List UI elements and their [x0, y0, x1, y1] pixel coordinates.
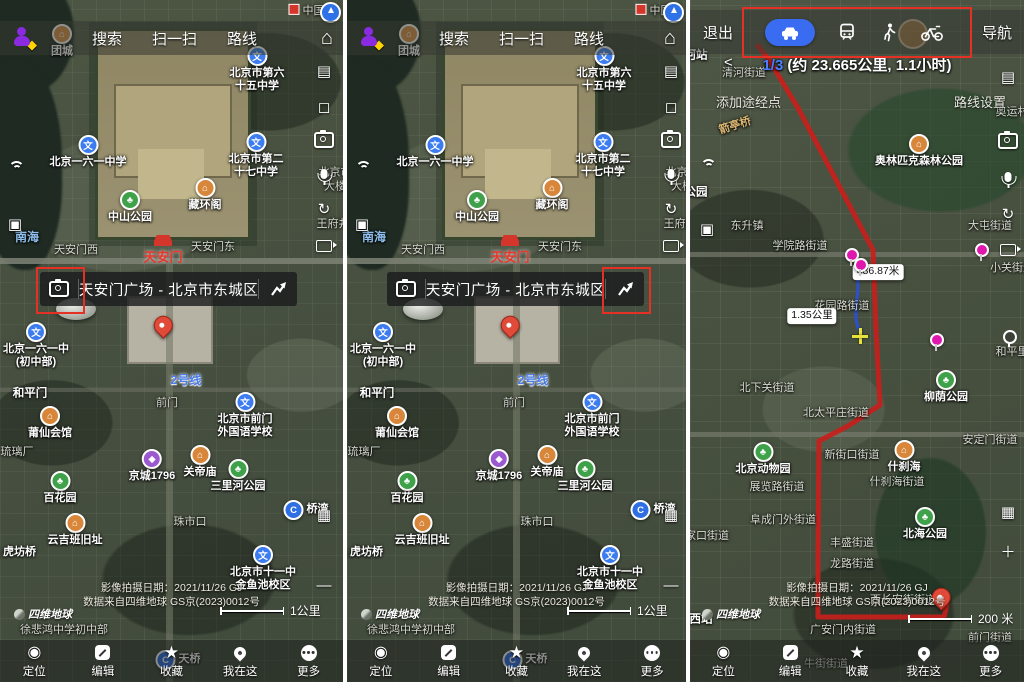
- signal-icon[interactable]: [700, 158, 715, 173]
- city-panel-1: 中国美⌂团城文北京市第六 十五中学文北京一六一中学文北京市第二 十七中学♣中山公…: [0, 0, 343, 682]
- mode-bike-button[interactable]: [920, 22, 944, 42]
- toolbar-label: 更多: [979, 663, 1002, 679]
- qianmen-street-road: [513, 260, 520, 682]
- locate-button[interactable]: ◉定位: [690, 640, 757, 682]
- star-icon: ★: [164, 644, 179, 661]
- toolbar-label: 我在这: [223, 663, 258, 679]
- home-icon[interactable]: ⌂: [321, 28, 333, 48]
- city-panel-2: 中国美⌂团城文北京市第六 十五中学文北京一六一中学文北京市第二 十七中学♣中山公…: [347, 0, 686, 682]
- more-icon: [644, 645, 660, 661]
- scale-bar: 1公里: [567, 602, 668, 619]
- transport-mode-group: [765, 19, 944, 46]
- more-icon: [301, 645, 317, 661]
- camera-icon[interactable]: [998, 133, 1018, 152]
- video-icon[interactable]: [663, 240, 679, 255]
- toolbar-label: 我在这: [567, 663, 602, 679]
- exit-button[interactable]: 退出: [703, 22, 733, 43]
- qianmen-east-road: [347, 388, 686, 392]
- mode-walk-button[interactable]: [879, 22, 899, 43]
- forbidden-city-block: [95, 28, 251, 240]
- streetview-camera-button[interactable]: [387, 281, 425, 297]
- pin-icon: [576, 644, 593, 661]
- route-shortcut-button[interactable]: [606, 279, 644, 299]
- pin-button[interactable]: 我在这: [890, 640, 957, 682]
- compass-icon[interactable]: [663, 2, 684, 23]
- menu-scan[interactable]: 扫一扫: [499, 28, 544, 49]
- qr-icon[interactable]: ▦: [664, 508, 678, 523]
- navigate-button[interactable]: 导航: [982, 22, 1012, 43]
- siwei-earth-logo: 四维地球: [14, 606, 72, 622]
- car-icon: [778, 23, 802, 42]
- route-arrow-icon: [615, 279, 635, 299]
- mic-icon[interactable]: [321, 167, 328, 182]
- pin-button[interactable]: 我在这: [550, 640, 618, 682]
- video-icon[interactable]: [1000, 244, 1016, 259]
- menu-search[interactable]: 搜索: [92, 28, 122, 49]
- bike-icon: [920, 22, 944, 42]
- toolbar-label: 收藏: [505, 663, 528, 679]
- star-icon: ★: [849, 644, 864, 661]
- pin-icon: [915, 644, 932, 661]
- route-top-bar: 退出: [690, 10, 1024, 54]
- toolbar-label: 编辑: [437, 663, 460, 679]
- walking-segment-polyline: [856, 276, 859, 330]
- camera-icon[interactable]: [314, 132, 334, 151]
- mode-transit-button[interactable]: [836, 22, 858, 42]
- edit-button[interactable]: 编辑: [757, 640, 824, 682]
- bottom-toolbar: ◉定位编辑★收藏我在这更多: [0, 640, 343, 682]
- gem-icon: ◆: [374, 37, 384, 53]
- scale-bar: 200 米: [908, 610, 1013, 627]
- toolbar-label: 收藏: [160, 663, 183, 679]
- more-button[interactable]: 更多: [618, 640, 686, 682]
- toolbar-label: 定位: [369, 663, 392, 679]
- avatar[interactable]: ◆: [359, 27, 381, 50]
- plus-icon[interactable]: ＋: [1000, 545, 1015, 560]
- transit-icon: [836, 22, 858, 42]
- route-shortcut-button[interactable]: [259, 279, 297, 299]
- qianmen-east-road: [0, 388, 343, 392]
- toolbar-label: 编辑: [779, 663, 802, 679]
- more-button[interactable]: 更多: [957, 640, 1024, 682]
- toolbar-label: 定位: [712, 663, 735, 679]
- rotate-icon[interactable]: ↻: [318, 202, 331, 217]
- driving-route-polyline: [758, 46, 947, 617]
- toolbar-label: 我在这: [907, 663, 942, 679]
- cube-icon[interactable]: ▣: [700, 222, 714, 237]
- toolbar-label: 更多: [297, 663, 320, 679]
- locate-icon: ◉: [716, 645, 730, 661]
- locate-icon: ◉: [27, 645, 41, 661]
- avatar[interactable]: ◆: [12, 27, 34, 50]
- compass-icon[interactable]: [320, 2, 341, 23]
- toolbar-label: 编辑: [91, 663, 114, 679]
- minus-icon[interactable]: —: [664, 578, 679, 593]
- video-icon[interactable]: [316, 240, 332, 255]
- edit-icon: [783, 645, 798, 660]
- menu-search[interactable]: 搜索: [439, 28, 469, 49]
- more-icon: [983, 645, 999, 661]
- camera-icon[interactable]: [661, 132, 681, 151]
- route-settings-button[interactable]: 路线设置: [954, 92, 1006, 111]
- home-icon[interactable]: ⌂: [664, 28, 676, 48]
- layers-icon[interactable]: ▤: [317, 64, 331, 79]
- locate-button[interactable]: ◉定位: [0, 640, 69, 682]
- pin-icon: [232, 644, 249, 661]
- star-button[interactable]: ★收藏: [483, 640, 551, 682]
- route-arrow-icon: [268, 279, 288, 299]
- add-waypoint-button[interactable]: 添加途经点: [716, 92, 781, 111]
- signal-icon[interactable]: [355, 160, 370, 175]
- route-summary-bar: < 1/3(约 23.665公里, 1.1小时): [690, 54, 1024, 75]
- place-title: 天安门广场 - 北京市东城区: [79, 279, 258, 300]
- locate-icon: ◉: [374, 645, 388, 661]
- star-button[interactable]: ★收藏: [824, 640, 891, 682]
- camera-icon: [49, 281, 69, 297]
- qr-icon[interactable]: ▦: [1001, 505, 1015, 520]
- signal-icon[interactable]: [8, 160, 23, 175]
- forbidden-city-block: [442, 28, 598, 240]
- gem-icon: ◆: [27, 37, 37, 53]
- walk-icon: [879, 22, 899, 43]
- menu-scan[interactable]: 扫一扫: [152, 28, 197, 49]
- top-menu-bar: 搜索 扫一扫 路线 ⌂: [347, 21, 686, 55]
- frame-icon[interactable]: ◻: [665, 100, 677, 115]
- layers-icon[interactable]: ▤: [664, 64, 678, 79]
- qr-icon[interactable]: ▦: [317, 508, 331, 523]
- siwei-earth-logo: 四维地球: [361, 606, 419, 622]
- edit-button[interactable]: 编辑: [69, 640, 138, 682]
- menu-route[interactable]: 路线: [227, 28, 257, 49]
- route-index[interactable]: 1/3: [762, 57, 783, 74]
- star-icon: ★: [509, 644, 524, 661]
- locate-button[interactable]: ◉定位: [347, 640, 415, 682]
- route-panel: 河站清河街道箭亭桥奥运村⌂奥林匹克森林公园公园东升镇大屯街道学院路街道小关街道4…: [690, 0, 1024, 682]
- bottom-toolbar: ◉定位编辑★收藏我在这更多: [347, 640, 686, 682]
- previous-route-arrow[interactable]: <: [724, 54, 733, 71]
- rotate-icon[interactable]: ↻: [665, 202, 678, 217]
- mode-car-button[interactable]: [765, 19, 815, 46]
- camera-icon: [396, 281, 416, 297]
- screenshot-stage: 中国美⌂团城文北京市第六 十五中学文北京一六一中学文北京市第二 十七中学♣中山公…: [0, 0, 1024, 682]
- toolbar-label: 收藏: [845, 663, 868, 679]
- edit-icon: [95, 645, 110, 660]
- bottom-toolbar: ◉定位编辑★收藏我在这更多: [690, 640, 1024, 682]
- edit-button[interactable]: 编辑: [415, 640, 483, 682]
- pin-button[interactable]: 我在这: [206, 640, 275, 682]
- toolbar-label: 定位: [23, 663, 46, 679]
- place-bar: 天安门广场 - 北京市东城区: [387, 272, 644, 306]
- edit-icon: [441, 645, 456, 660]
- place-bar: 天安门广场 - 北京市东城区: [40, 272, 297, 306]
- rotate-icon[interactable]: ↻: [1002, 207, 1015, 222]
- frame-icon[interactable]: ◻: [318, 100, 330, 115]
- route-summary: (约 23.665公里, 1.1小时): [787, 57, 951, 74]
- toolbar-label: 更多: [641, 663, 664, 679]
- qianmen-street-road: [166, 260, 173, 682]
- cube-icon[interactable]: ▣: [8, 217, 22, 232]
- place-title: 天安门广场 - 北京市东城区: [426, 279, 605, 300]
- top-menu-bar: 搜索 扫一扫 路线 ⌂: [0, 21, 343, 55]
- more-button[interactable]: 更多: [274, 640, 343, 682]
- scale-bar: 1公里: [220, 602, 321, 619]
- streetview-camera-button[interactable]: [40, 281, 78, 297]
- star-button[interactable]: ★收藏: [137, 640, 206, 682]
- mic-icon[interactable]: [668, 167, 675, 182]
- cube-icon[interactable]: ▣: [355, 217, 369, 232]
- menu-route[interactable]: 路线: [574, 28, 604, 49]
- minus-icon[interactable]: —: [317, 578, 332, 593]
- mic-icon[interactable]: [1005, 170, 1012, 185]
- siwei-earth-logo: 四维地球: [702, 606, 760, 622]
